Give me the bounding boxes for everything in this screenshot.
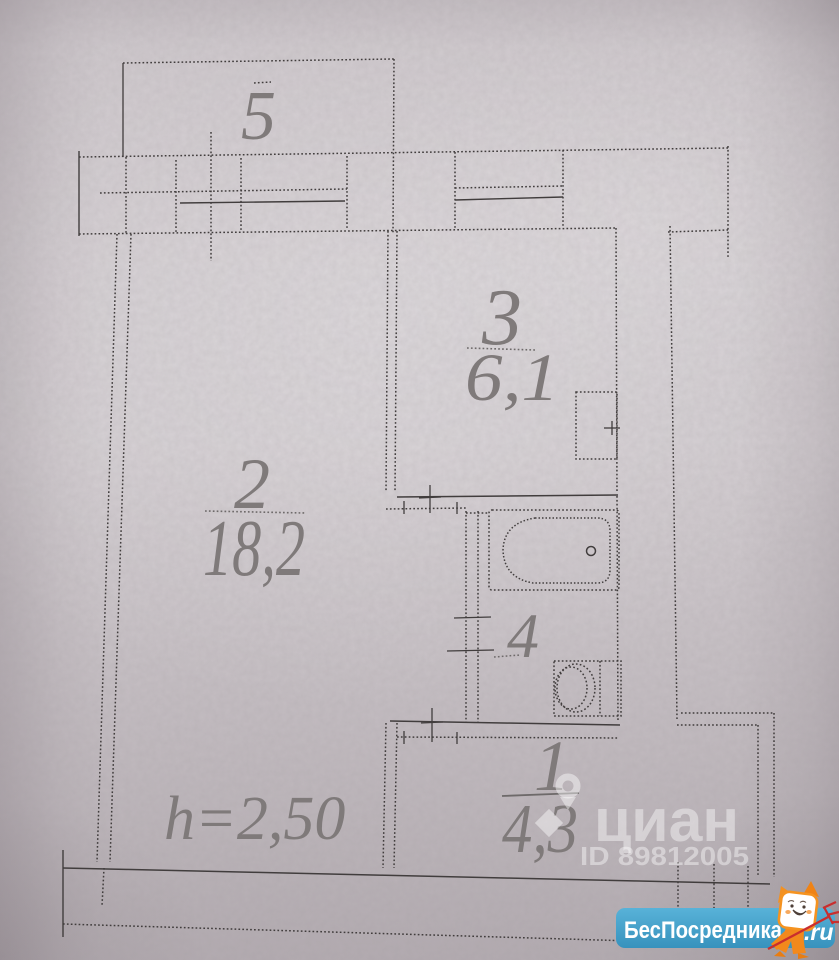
svg-text:5: 5 xyxy=(241,78,276,155)
svg-text:h=2,50: h=2,50 xyxy=(164,785,345,853)
svg-text:4: 4 xyxy=(507,600,539,671)
svg-text:БесПосредника: БесПосредника xyxy=(624,917,783,944)
svg-text:ID 89812005: ID 89812005 xyxy=(580,841,749,871)
svg-text:6,1: 6,1 xyxy=(465,339,559,415)
svg-text:18,2: 18,2 xyxy=(203,505,305,593)
